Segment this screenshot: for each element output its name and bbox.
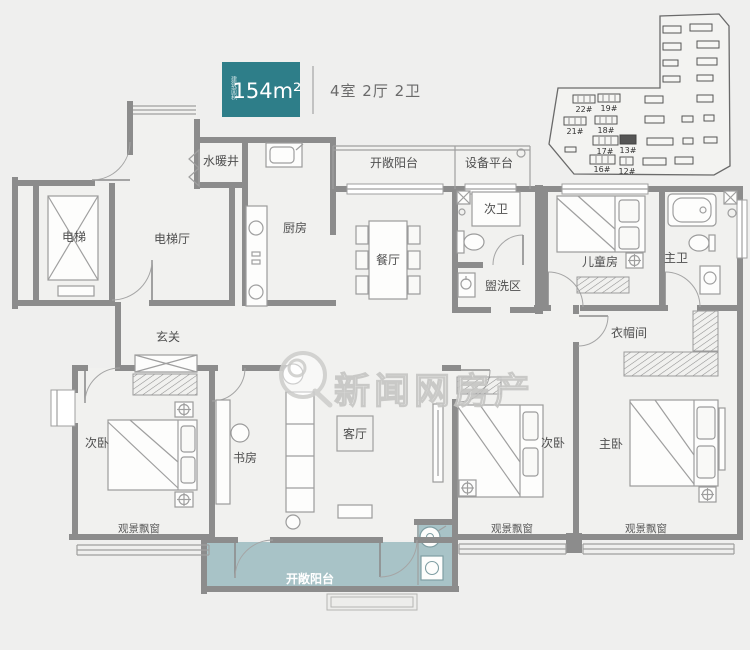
room-label-living-room: 客厅 <box>343 426 367 441</box>
building-18: 18# <box>595 116 617 135</box>
kids-bed <box>557 196 645 252</box>
site-plan: 22# 19# 21# 18# 17# <box>549 14 730 176</box>
watermark-text: 新闻网房产 <box>334 371 534 412</box>
room-label-cloakroom: 衣帽间 <box>611 325 647 340</box>
room-label-elevator-hall: 电梯厅 <box>154 232 190 246</box>
bay-window-label-right: 观景飘窗 <box>625 522 667 535</box>
svg-text:19#: 19# <box>601 104 618 113</box>
room-label-master-bath: 主卫 <box>664 251 688 265</box>
bathtub <box>668 194 716 226</box>
bay-window-mid <box>459 544 566 554</box>
kids-radiator <box>577 277 629 293</box>
svg-text:13#: 13# <box>620 146 637 155</box>
radiator <box>719 408 725 470</box>
vent-symbol-kids <box>626 253 643 268</box>
kitchen-sink <box>266 143 303 167</box>
left-bedroom-side-window <box>51 390 75 426</box>
room-label-open-balcony-top: 开敞阳台 <box>370 155 418 170</box>
room-label-open-balcony-bottom: 开敞阳台 <box>286 571 334 586</box>
study-table <box>231 424 249 442</box>
kitchen-stove <box>246 206 267 306</box>
toilet-bowl <box>464 234 484 250</box>
svg-text:21#: 21# <box>567 127 584 136</box>
building-21: 21# <box>564 117 586 136</box>
unit-info-text: 4室 2厅 2卫 <box>330 82 421 100</box>
ac-platform <box>327 594 417 610</box>
room-label-second-bedroom-left: 次卧 <box>85 436 109 450</box>
room-label-utility-shaft: 水暖井 <box>203 154 239 168</box>
entry-door <box>92 142 130 180</box>
room-label-kids-room: 儿童房 <box>582 254 618 269</box>
bay-window-right <box>583 544 734 554</box>
badge-area-value: 154m² <box>233 79 302 103</box>
toilet-bowl <box>689 235 709 251</box>
room-label-dining: 餐厅 <box>376 252 400 267</box>
toilet-tank <box>457 231 464 253</box>
floor-plan-canvas: 建筑面积 154m² 4室 2厅 2卫 22# <box>0 0 750 650</box>
room-label-elevator: 电梯 <box>62 230 86 244</box>
bay-window-label-mid: 观景飘窗 <box>491 522 533 535</box>
room-label-wash-area: 盥洗区 <box>485 279 521 293</box>
room-label-master-bedroom: 主卧 <box>599 437 623 451</box>
wall-nub <box>566 533 582 553</box>
vent-symbol <box>699 487 716 502</box>
svg-text:12#: 12# <box>619 167 636 176</box>
washing-machine <box>421 556 443 580</box>
svg-text:16#: 16# <box>594 165 611 174</box>
bay-window-label-left: 观景飘窗 <box>118 522 160 535</box>
room-label-study: 书房 <box>233 450 257 465</box>
toilet-tank <box>709 235 715 251</box>
svg-text:22#: 22# <box>576 105 593 114</box>
room-label-kitchen: 厨房 <box>283 220 307 235</box>
building-22: 22# <box>573 95 595 114</box>
svg-text:18#: 18# <box>598 126 615 135</box>
building-19: 19# <box>598 94 620 113</box>
vent-symbol <box>175 402 193 417</box>
sofa <box>286 392 314 512</box>
room-label-equipment-platform: 设备平台 <box>465 155 513 170</box>
floor-plan-page: 建筑面积 154m² 4室 2厅 2卫 22# <box>0 0 750 650</box>
bay-window-left <box>77 545 209 555</box>
area-badge: 建筑面积 154m² 4室 2厅 2卫 <box>222 62 421 117</box>
building-12: 12# <box>619 157 636 176</box>
room-label-entry-hall: 玄关 <box>156 329 180 344</box>
room-label-second-bedroom-right: 次卧 <box>541 436 565 450</box>
side-table <box>286 515 300 529</box>
room-label-second-bath: 次卫 <box>484 202 508 216</box>
vent-symbol <box>459 480 476 496</box>
coffee-table <box>338 505 372 518</box>
vent-symbol <box>175 492 193 507</box>
study-desk <box>216 400 230 504</box>
wash-basin <box>700 266 720 294</box>
